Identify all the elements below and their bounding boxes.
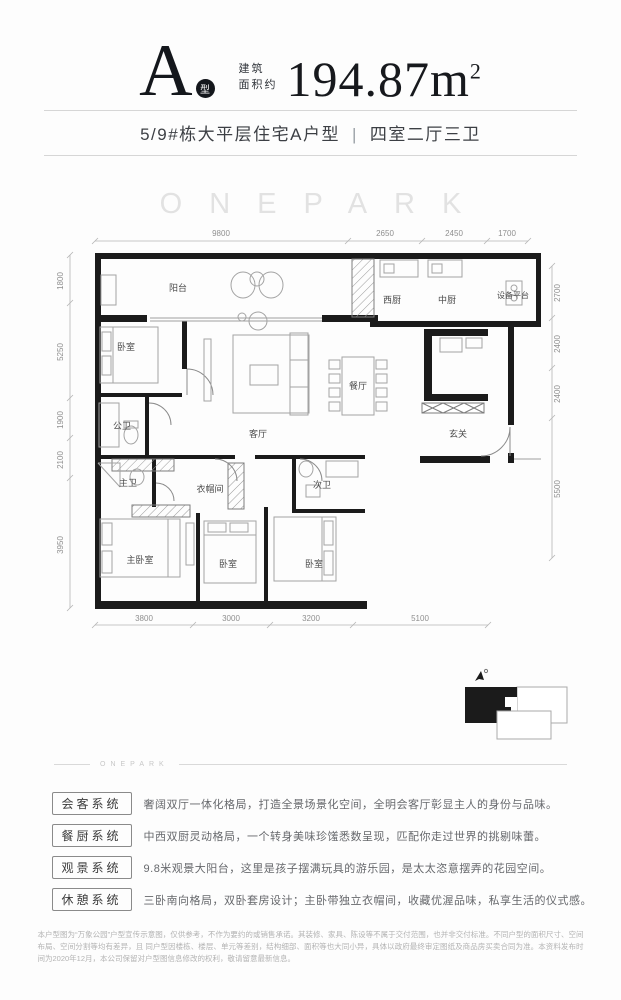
subtitle-left: 5/9#栋大平层住宅A户型 <box>140 125 340 144</box>
feature-text-view: 9.8米观景大阳台，这里是孩子摆满玩具的游乐园，是太太恣意摆弄的花园空间。 <box>144 860 552 876</box>
feature-list: 会客系统 奢阔双厅一体化格局，打造全景场景化空间，全明会客厅彰显主人的身份与品味… <box>52 792 570 911</box>
room-guest-bath: 公卫 <box>113 421 131 431</box>
floor-plan: 9800 2650 2450 1700 3800 3000 3200 5100 … <box>0 223 621 659</box>
feature-tag-guest: 会客系统 <box>52 792 132 815</box>
room-foyer: 玄关 <box>449 428 467 439</box>
room-bedroom-top: 卧室 <box>117 341 135 352</box>
watermark-onepark: ONEPARK <box>0 188 621 221</box>
dim-right-3: 2400 <box>553 385 562 403</box>
keyplan <box>459 665 579 745</box>
room-master-bath: 主卫 <box>119 477 137 488</box>
room-west-kitchen: 西厨 <box>383 295 401 305</box>
feature-row-rest: 休憩系统 三卧南向格局，双卧套房设计；主卧带独立衣帽间，收藏优渥品味，私享生活的… <box>52 888 570 911</box>
feature-row-guest: 会客系统 奢阔双厅一体化格局，打造全景场景化空间，全明会客厅彰显主人的身份与品味… <box>52 792 570 815</box>
dim-bottom-4: 5100 <box>411 614 429 623</box>
divider-watermark: ONEPARK <box>100 761 169 768</box>
dimension-lines <box>67 238 555 628</box>
section-divider: ONEPARK <box>54 761 567 768</box>
room-chinese-kitchen: 中厨 <box>438 294 456 305</box>
area-sup: 2 <box>470 58 482 83</box>
dim-top-4: 1700 <box>498 229 516 238</box>
dim-top-1: 9800 <box>212 229 230 238</box>
dim-left-4: 2100 <box>56 451 65 469</box>
keyplan-wrap <box>0 665 621 745</box>
north-arrow-icon <box>475 671 484 681</box>
room-bedroom-right: 卧室 <box>305 558 323 569</box>
dim-bottom-1: 3800 <box>135 614 153 623</box>
room-bedroom-mid: 卧室 <box>219 558 237 569</box>
dim-top-2: 2650 <box>376 229 394 238</box>
dim-bottom-2: 3000 <box>222 614 240 623</box>
area-block: 建筑 面积约 194.87m2 <box>239 57 482 102</box>
area-prefix-line2: 面积约 <box>239 78 278 93</box>
dim-right-2: 2400 <box>553 335 562 353</box>
area-value: 194.87m2 <box>287 57 482 102</box>
floorplan-flyer: A 型 建筑 面积约 194.87m2 5/9#栋大平层住宅A户型|四室二厅三卫… <box>0 0 621 1000</box>
divider-line-right <box>179 764 567 765</box>
feature-text-kitchen: 中西双厨灵动格局，一个转身美味珍馐悉数呈现，匹配你走过世界的挑剔味蕾。 <box>144 828 547 844</box>
unit-type-badge: 型 <box>196 79 215 98</box>
room-living: 客厅 <box>249 428 267 439</box>
feature-text-rest: 三卧南向格局，双卧套房设计；主卧带独立衣帽间，收藏优渥品味，私享生活的仪式感。 <box>144 892 593 908</box>
dim-left-5: 3950 <box>56 536 65 554</box>
dim-left-1: 1800 <box>56 272 65 290</box>
header: A 型 建筑 面积约 194.87m2 <box>0 0 621 102</box>
area-prefix: 建筑 面积约 <box>239 62 278 93</box>
keyplan-lower-block <box>497 711 551 739</box>
room-cloakroom: 衣帽间 <box>196 483 223 494</box>
area-unit: m <box>430 51 470 107</box>
subtitle-bar: 5/9#栋大平层住宅A户型|四室二厅三卫 <box>44 110 577 156</box>
unit-type-letter: A <box>139 41 192 102</box>
feature-text-guest: 奢阔双厅一体化格局，打造全景场景化空间，全明会客厅彰显主人的身份与品味。 <box>144 796 558 812</box>
feature-tag-kitchen: 餐厨系统 <box>52 824 132 847</box>
dim-right-4: 5500 <box>553 480 562 498</box>
room-equipment-platform: 设备平台 <box>497 290 529 300</box>
dim-left-2: 5250 <box>56 343 65 361</box>
subtitle-separator: | <box>352 125 358 144</box>
room-master-bedroom: 主卧室 <box>126 554 153 565</box>
divider-line-left <box>54 764 90 765</box>
dim-left-3: 1900 <box>56 411 65 429</box>
north-arrow-dot <box>484 669 487 672</box>
feature-tag-view: 观景系统 <box>52 856 132 879</box>
keyplan-notch <box>505 697 517 707</box>
room-dining: 餐厅 <box>349 380 367 391</box>
disclaimer: 本户型图为“万象公园”户型宣传示意图，仅供参考，不作为要约的或销售承诺。其装修、… <box>38 929 584 965</box>
unit-type-mark: A 型 <box>139 41 214 102</box>
dim-top-3: 2450 <box>445 229 463 238</box>
area-number: 194.87 <box>287 51 431 107</box>
dim-bottom-3: 3200 <box>302 614 320 623</box>
room-balcony: 阳台 <box>169 282 187 293</box>
dim-right-1: 2700 <box>553 284 562 302</box>
area-prefix-line1: 建筑 <box>239 62 278 77</box>
walls <box>95 253 541 609</box>
room-second-bath: 次卫 <box>313 479 331 490</box>
furniture <box>98 260 522 583</box>
feature-tag-rest: 休憩系统 <box>52 888 132 911</box>
feature-row-view: 观景系统 9.8米观景大阳台，这里是孩子摆满玩具的游乐园，是太太恣意摆弄的花园空… <box>52 856 570 879</box>
feature-row-kitchen: 餐厨系统 中西双厨灵动格局，一个转身美味珍馐悉数呈现，匹配你走过世界的挑剔味蕾。 <box>52 824 570 847</box>
subtitle-right: 四室二厅三卫 <box>370 125 481 144</box>
